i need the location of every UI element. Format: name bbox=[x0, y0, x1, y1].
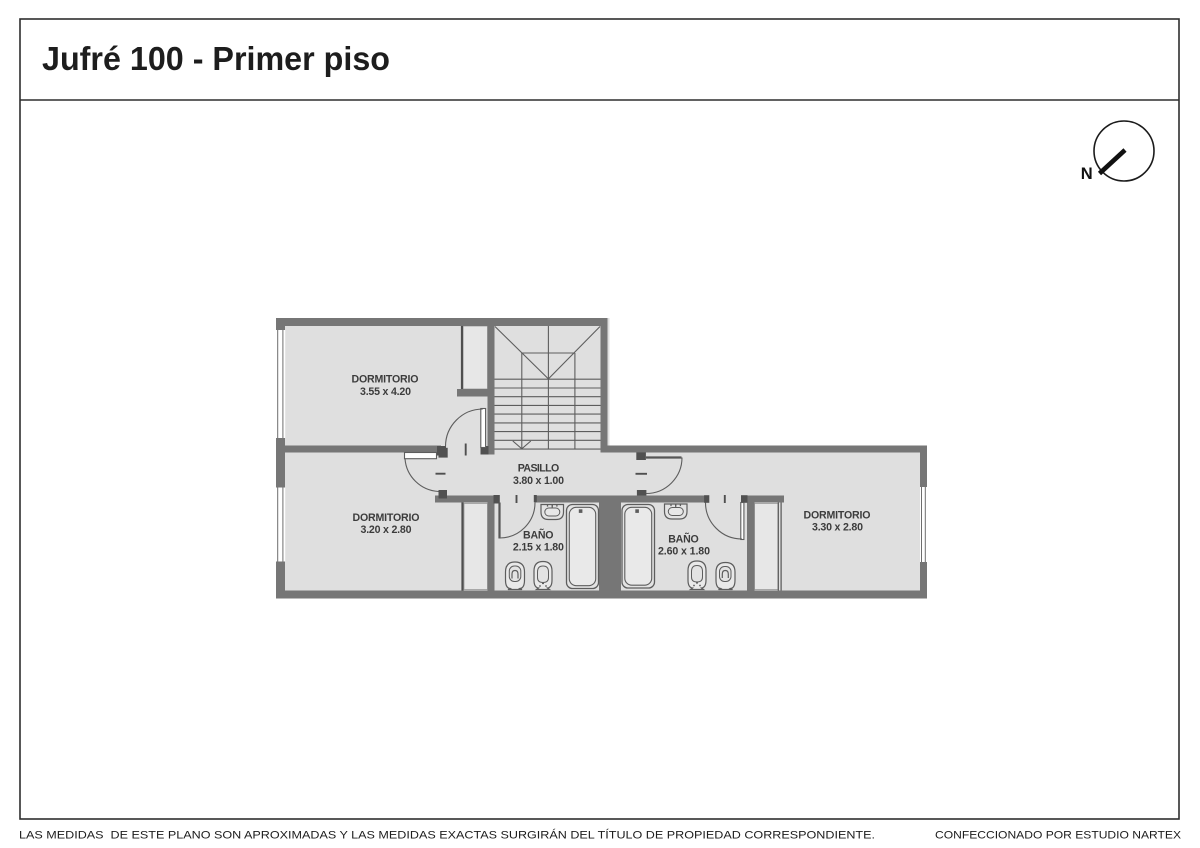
svg-text:DORMITORIO: DORMITORIO bbox=[353, 512, 420, 524]
svg-text:DORMITORIO: DORMITORIO bbox=[352, 374, 419, 386]
svg-text:3.30 x 2.80: 3.30 x 2.80 bbox=[812, 522, 863, 534]
svg-text:Jufré 100 - Primer piso: Jufré 100 - Primer piso bbox=[42, 41, 390, 78]
svg-text:N: N bbox=[1081, 165, 1093, 183]
svg-text:DORMITORIO: DORMITORIO bbox=[804, 509, 871, 521]
svg-text:2.15 x 1.80: 2.15 x 1.80 bbox=[513, 542, 564, 554]
svg-text:BAÑO: BAÑO bbox=[523, 529, 554, 542]
svg-text:LAS MEDIDAS DE ESTE PLANO SON: LAS MEDIDAS DE ESTE PLANO SON APROXIMADA… bbox=[19, 829, 875, 842]
svg-text:BAÑO: BAÑO bbox=[668, 533, 699, 546]
svg-text:2.60 x 1.80: 2.60 x 1.80 bbox=[658, 546, 710, 558]
svg-text:3.80 x 1.00: 3.80 x 1.00 bbox=[513, 475, 564, 487]
svg-text:3.55 x 4.20: 3.55 x 4.20 bbox=[360, 386, 411, 398]
svg-text:CONFECCIONADO POR ESTUDIO NART: CONFECCIONADO POR ESTUDIO NARTEX bbox=[935, 830, 1182, 842]
svg-text:PASILLO: PASILLO bbox=[518, 463, 560, 475]
svg-text:3.20 x 2.80: 3.20 x 2.80 bbox=[361, 524, 412, 536]
